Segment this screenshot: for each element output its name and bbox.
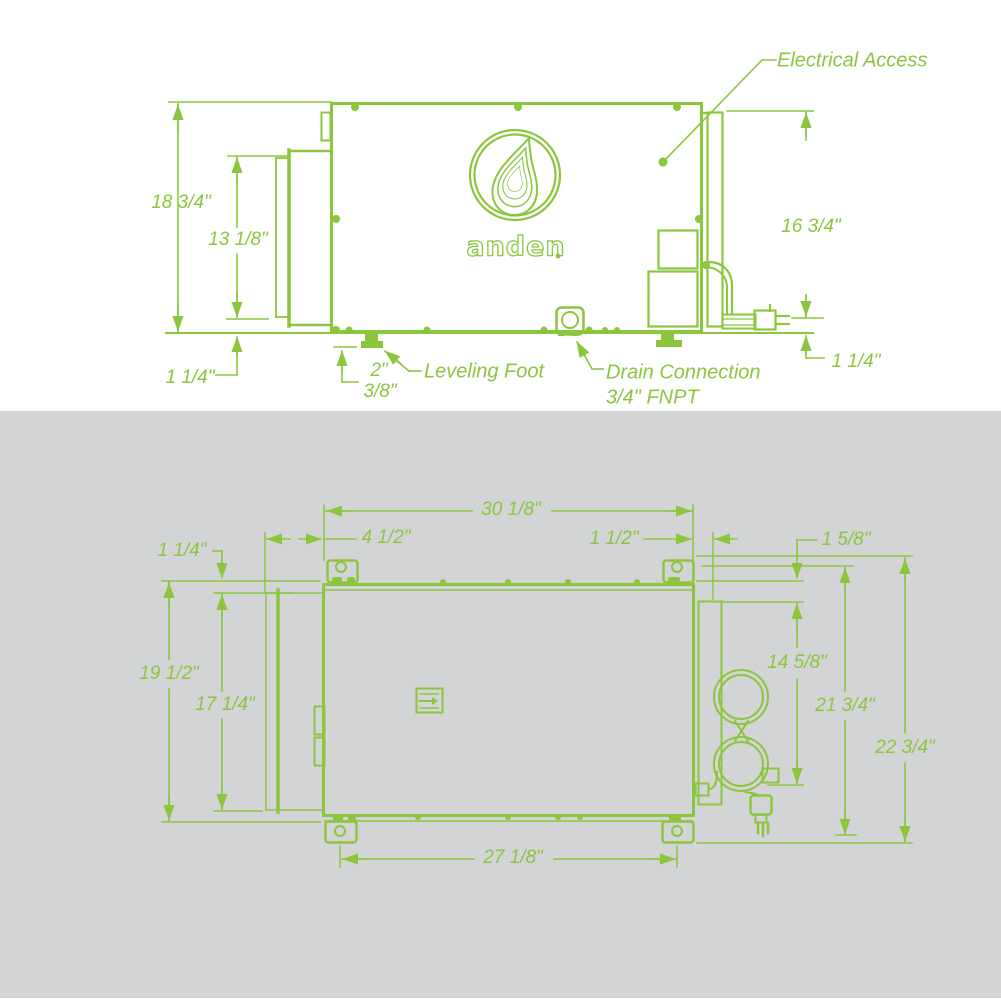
dim-collar-depth-label: 4 1/2": [357, 527, 414, 549]
dim-clearance-left: [216, 337, 237, 375]
dim-foot-size-label: 2": [370, 360, 387, 382]
dim-bracket-offset-left: [213, 551, 222, 578]
dim-bracket-spacing-label: 27 1/8": [479, 847, 547, 869]
dim-overall-height-label: 18 3/4": [151, 192, 211, 214]
dim-overall-depth-label: 22 3/4": [871, 737, 939, 759]
drain-leader: [577, 342, 603, 369]
dimension-drawing-page: Electrical Access 18 3/4" 13 1/8" 16 3/4…: [0, 0, 1001, 1001]
dim-depth-to-cord-label: 21 3/4": [811, 695, 879, 717]
logo-flame-icon: [492, 138, 537, 215]
right-panel-side: [702, 113, 723, 327]
intake-collar-plan: [266, 590, 322, 812]
intake-collar-side: [276, 150, 331, 326]
electrical-boxes: [649, 231, 698, 327]
body-outline-plan: [324, 579, 694, 821]
drain-size-label: 3/4" FNPT: [606, 387, 699, 410]
plan-view: [162, 505, 912, 867]
dim-body-width-label: 30 1/8": [477, 499, 545, 521]
dim-bracket-offset-left-label: 1 1/4": [153, 540, 210, 562]
dim-cord-offset-label: 14 5/8": [763, 652, 831, 674]
dim-electrical-height-label: 16 3/4": [781, 216, 841, 238]
side-view: [166, 60, 824, 382]
electrical-access-label: Electrical Access: [777, 50, 927, 73]
dim-collar-height-label: 13 1/8": [208, 229, 268, 251]
dim-bracket-offset-right: [797, 540, 818, 578]
airflow-sticker-icon: [417, 689, 443, 713]
dim-foot-adjust-label: 3/8": [363, 381, 396, 403]
dim-electrical-height: [727, 111, 823, 318]
leveling-feet: [361, 334, 682, 348]
power-cord-side: [705, 262, 789, 330]
anden-logo-text: anden: [466, 232, 565, 263]
leveling-foot-leader: [385, 351, 421, 371]
dim-clearance-right-label: 1 1/4": [831, 351, 880, 373]
dim-clearance-right: [806, 336, 824, 358]
mounting-brackets: [326, 561, 694, 843]
dim-collar-width-label: 17 1/4": [191, 694, 259, 716]
dim-foot: [334, 347, 358, 382]
plan-extension-lines: [162, 505, 912, 867]
drain-connection-label: Drain Connection: [606, 362, 761, 385]
dim-body-depth-label: 19 1/2": [135, 663, 203, 685]
power-cord-plan: [709, 670, 779, 836]
plug-icon: [751, 796, 772, 837]
dim-clearance-left-label: 1 1/4": [165, 367, 214, 389]
leveling-foot-label: Leveling Foot: [424, 361, 544, 384]
unit-outline: [322, 103, 704, 334]
dim-overall-height: [169, 102, 331, 331]
dim-bracket-offset-right-label: 1 5/8": [817, 529, 874, 551]
dim-panel-offset-label: 1 1/2": [585, 528, 642, 550]
